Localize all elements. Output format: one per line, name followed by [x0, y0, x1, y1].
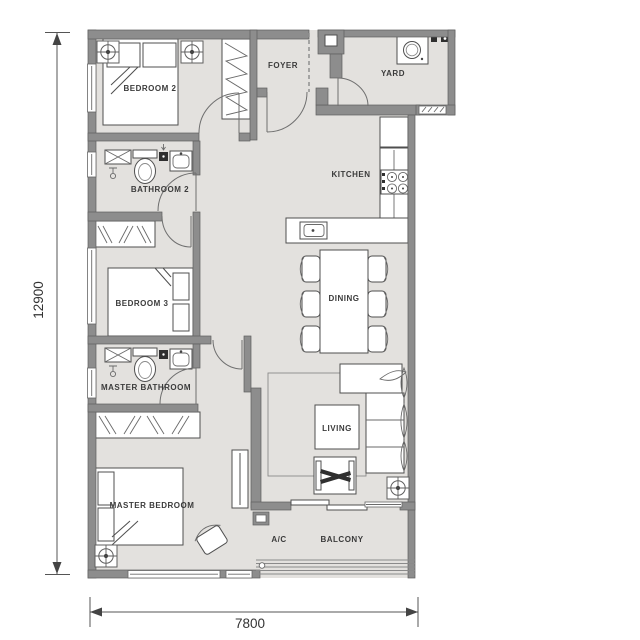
dimension-depth: 12900 [31, 281, 46, 319]
wall-balcony-west [251, 502, 291, 510]
chair [368, 326, 386, 352]
duct-niche [325, 35, 337, 46]
window [128, 571, 220, 579]
window [88, 64, 97, 112]
wall-entry-stub [316, 88, 328, 105]
wall-suite-east [244, 336, 251, 392]
label-balcony: BALCONY [320, 535, 363, 544]
wall-bedroom3-east [193, 212, 200, 344]
chaise [340, 364, 402, 393]
label-ac: A/C [271, 535, 286, 544]
label-bedroom3: BEDROOM 3 [116, 299, 169, 308]
wall-master-bathroom-south [88, 404, 198, 412]
chair [368, 291, 386, 317]
bedroom2-wardrobe [222, 39, 250, 119]
ac-ledge-inner [256, 515, 266, 522]
label-master-bedroom: MASTER BEDROOM [110, 501, 195, 510]
master-wardrobe-panel [232, 450, 248, 508]
basin-icon [170, 349, 192, 369]
dimension-bottom: 7800 [90, 597, 418, 631]
wall-yard-left [330, 54, 342, 78]
label-dining: DINING [329, 294, 360, 303]
label-bathroom2: BATHROOM 2 [131, 185, 189, 194]
stove-icon [381, 170, 408, 194]
wall-yard-right [448, 30, 455, 115]
yard-vent-window [419, 106, 446, 114]
wall-master-bathroom-east [193, 344, 200, 368]
chair [368, 256, 386, 282]
label-bedroom2: BEDROOM 2 [124, 84, 177, 93]
label-foyer: FOYER [268, 61, 298, 70]
chair [302, 291, 320, 317]
window [88, 248, 97, 324]
toilet-icon [133, 348, 157, 356]
dimension-left: 12900 [31, 33, 70, 575]
wall-bathroom2-east [193, 141, 200, 175]
master-closet [93, 412, 200, 438]
washing-machine-icon [397, 36, 428, 64]
wall-yard-bottom [316, 105, 420, 115]
kitchen-island [286, 218, 408, 243]
wall-bedroom2-south-right [239, 133, 250, 141]
wall-master-suite-north [88, 336, 211, 344]
wall-living-west [251, 388, 261, 508]
wall-top-outer [88, 30, 309, 39]
pillow [173, 273, 189, 300]
toilet-icon [133, 150, 157, 158]
bedroom3-closet [93, 221, 155, 247]
label-master-bathroom: MASTER BATHROOM [101, 383, 191, 392]
label-kitchen: KITCHEN [331, 170, 370, 179]
wall-foyer-left [250, 30, 257, 140]
pillow [98, 508, 114, 541]
label-yard: YARD [381, 69, 405, 78]
floor-plan-svg: BEDROOM 2 FOYER YARD BATHROOM 2 KITCHEN … [0, 0, 640, 640]
pillow [173, 304, 189, 331]
floor-plan-canvas: BEDROOM 2 FOYER YARD BATHROOM 2 KITCHEN … [0, 0, 640, 640]
pillow [143, 43, 176, 67]
window [226, 571, 252, 579]
ac-unit-icon [387, 477, 409, 499]
wall-bedroom2-south [88, 133, 199, 141]
chair [302, 326, 320, 352]
tv-console [314, 457, 356, 494]
ac-unit-icon [97, 41, 119, 63]
fridge [380, 117, 408, 147]
ac-unit-icon [181, 41, 203, 63]
window [88, 368, 97, 398]
wall-foyer-stub [257, 88, 267, 97]
chair [302, 256, 320, 282]
wall-bathroom2-south [88, 212, 162, 221]
dimension-width: 7800 [235, 616, 265, 631]
ac-unit-icon [95, 545, 117, 567]
label-living: LIVING [322, 424, 352, 433]
basin-icon [170, 151, 192, 171]
window [88, 152, 97, 177]
